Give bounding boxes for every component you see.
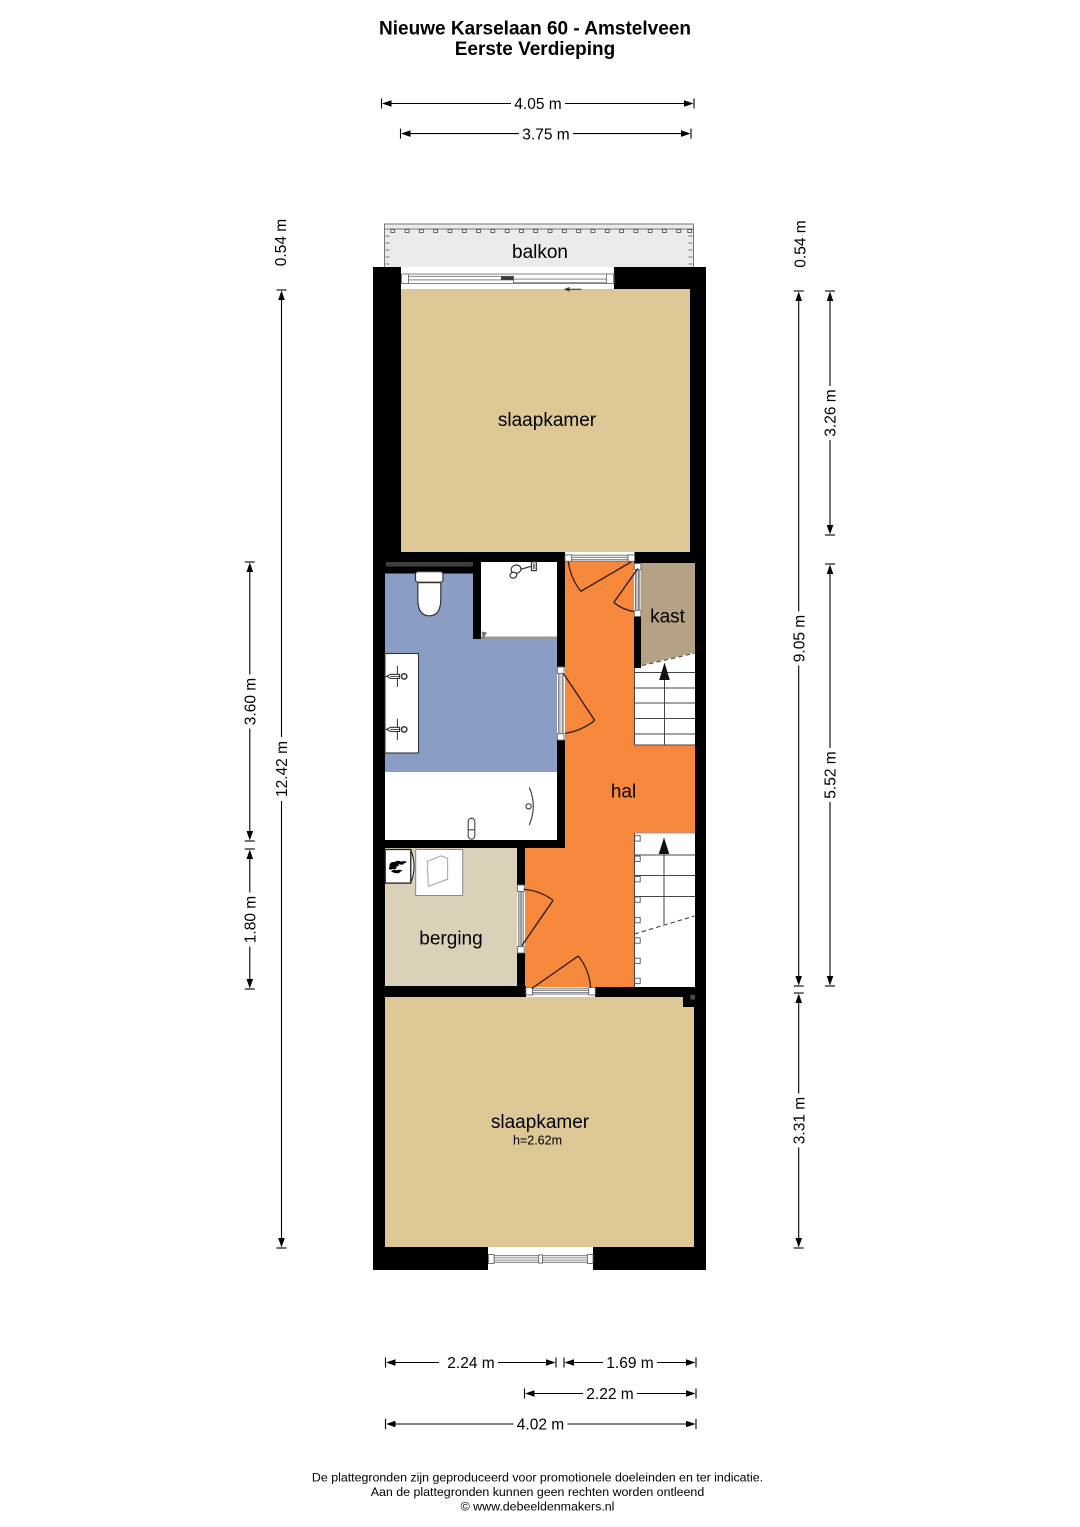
svg-text:0.54 m: 0.54 m bbox=[273, 219, 290, 266]
svg-text:1.80 m: 1.80 m bbox=[243, 896, 260, 943]
svg-text:kast: kast bbox=[650, 607, 686, 628]
svg-text:4.05 m: 4.05 m bbox=[514, 96, 561, 113]
svg-text:Eerste Verdieping: Eerste Verdieping bbox=[455, 39, 616, 60]
svg-text:slaapkamer: slaapkamer bbox=[491, 1112, 590, 1133]
svg-text:3.75 m: 3.75 m bbox=[522, 126, 569, 143]
svg-text:0.54 m: 0.54 m bbox=[793, 220, 810, 267]
svg-text:slaapkamer: slaapkamer bbox=[498, 410, 597, 431]
svg-text:2.24 m: 2.24 m bbox=[447, 1355, 494, 1372]
svg-text:Nieuwe Karselaan 60 - Amstelve: Nieuwe Karselaan 60 - Amstelveen bbox=[379, 19, 691, 40]
svg-text:balkon: balkon bbox=[512, 242, 568, 263]
svg-text:4.02 m: 4.02 m bbox=[517, 1417, 564, 1434]
svg-text:3.26 m: 3.26 m bbox=[823, 389, 840, 436]
svg-text:5.52 m: 5.52 m bbox=[823, 751, 840, 798]
svg-text:Aan de plattegronden kunnen ge: Aan de plattegronden kunnen geen rechten… bbox=[371, 1485, 705, 1499]
svg-text:3.60 m: 3.60 m bbox=[243, 678, 260, 725]
svg-text:hal: hal bbox=[611, 782, 636, 803]
svg-text:9.05 m: 9.05 m bbox=[791, 615, 808, 662]
svg-text:12.42 m: 12.42 m bbox=[274, 741, 291, 797]
svg-text:De plattegronden zijn geproduc: De plattegronden zijn geproduceerd voor … bbox=[312, 1471, 763, 1485]
svg-text:2.22 m: 2.22 m bbox=[586, 1386, 633, 1403]
svg-text:1.69 m: 1.69 m bbox=[606, 1355, 653, 1372]
svg-text:© www.debeeldenmakers.nl: © www.debeeldenmakers.nl bbox=[461, 1500, 615, 1514]
svg-text:berging: berging bbox=[419, 929, 482, 950]
svg-text:3.31 m: 3.31 m bbox=[791, 1097, 808, 1144]
svg-text:h=2.62m: h=2.62m bbox=[513, 1134, 562, 1148]
